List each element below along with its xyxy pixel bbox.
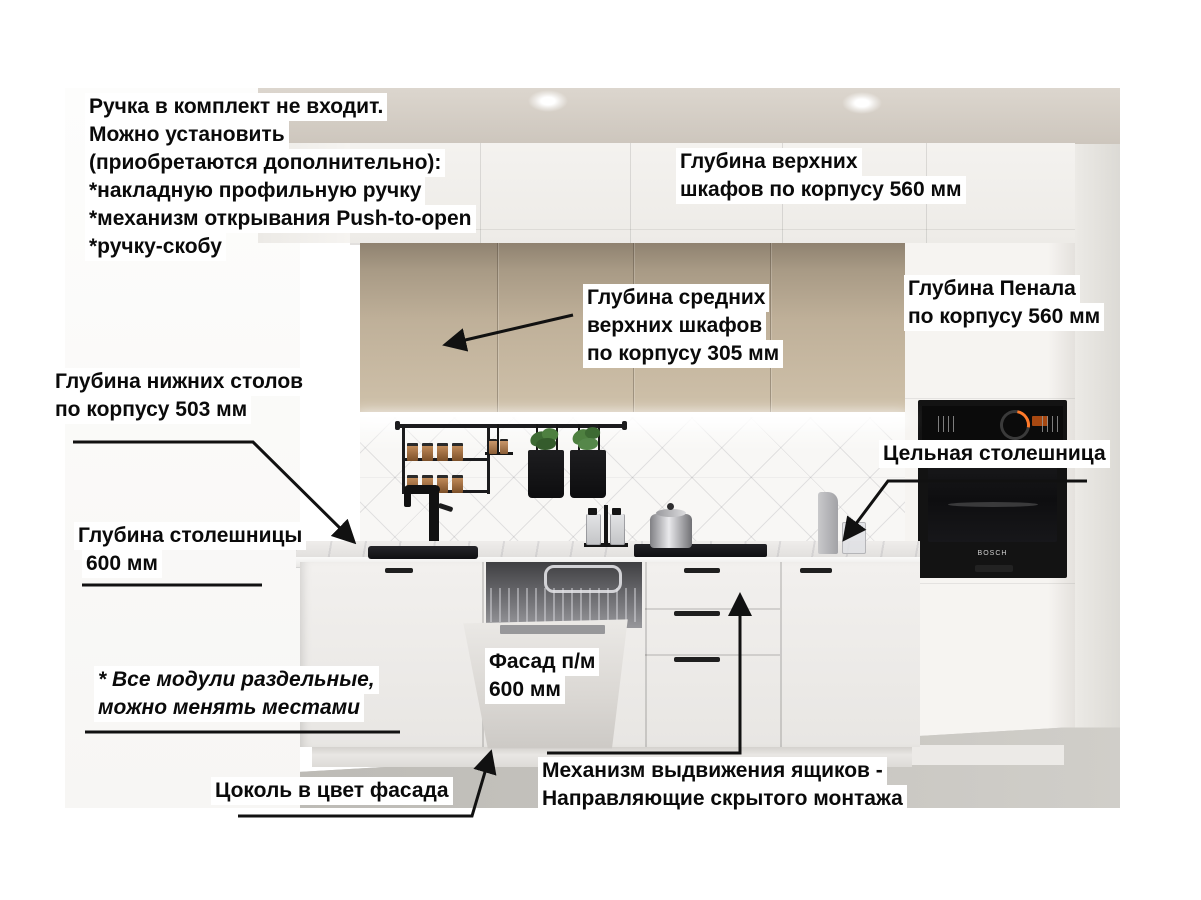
cabinet-seam	[480, 143, 481, 243]
drinking-glass	[842, 522, 866, 554]
annotation-line: шкафов по корпусу 560 мм	[676, 176, 966, 204]
annotation-line: Направляющие скрытого монтажа	[538, 785, 907, 813]
annotation-line: *накладную профильную ручку	[85, 177, 425, 205]
annotation-line: Глубина средних	[583, 284, 769, 312]
cabinet-seam	[905, 583, 1075, 584]
annotation-line: верхних шкафов	[583, 312, 766, 340]
dishwasher-door-handle	[500, 625, 605, 634]
annotation-line: *ручку-скобу	[85, 233, 226, 261]
cabinet-handle	[800, 568, 832, 573]
drawer-handle	[674, 657, 720, 662]
ceiling-spotlight	[842, 92, 882, 114]
oil-bottle-cap	[588, 508, 597, 515]
drawer-seam	[645, 654, 780, 656]
dishwasher-interior	[486, 562, 642, 628]
annotation-plinth: Цоколь в цвет фасада	[211, 777, 453, 805]
annotation-line: Ручка в комплект не входит.	[85, 93, 387, 121]
annotation-line: 600 мм	[82, 550, 162, 578]
annotation-modules-note: * Все модули раздельные, можно менять ме…	[94, 666, 379, 722]
annotation-solid-countertop: Цельная столешница	[879, 440, 1110, 468]
drawer-handle	[674, 611, 720, 616]
annotation-line: Механизм выдвижения ящиков -	[538, 757, 887, 785]
annotation-line: по корпусу 560 мм	[904, 303, 1104, 331]
annotation-line: *механизм открывания Push-to-open	[85, 205, 476, 233]
annotation-dishwasher-facade: Фасад п/м 600 мм	[485, 648, 599, 704]
mini-bottle	[489, 439, 497, 454]
annotation-tall-cabinet-depth: Глубина Пенала по корпусу 560 мм	[904, 275, 1104, 331]
mini-bottle	[500, 439, 508, 454]
annotation-handles-note: Ручка в комплект не входит. Можно устано…	[85, 93, 476, 261]
cabinet-handle	[385, 568, 413, 573]
spice-jar	[452, 443, 463, 461]
plinth-penal	[912, 745, 1064, 765]
annotation-line: Можно установить	[85, 121, 289, 149]
rail-hanger	[497, 424, 499, 454]
dishwasher-rack	[490, 588, 638, 622]
annotated-kitchen-image: BOSCH	[0, 0, 1201, 900]
annotation-line: Глубина верхних	[676, 148, 862, 176]
cabinet-seam	[905, 398, 1075, 399]
annotation-line: Глубина нижних столов	[51, 368, 307, 396]
spice-jar	[407, 443, 418, 461]
annotation-line: Глубина столешницы	[74, 522, 306, 550]
annotation-base-cabinets-depth: Глубина нижних столов по корпусу 503 мм	[51, 368, 307, 424]
annotation-drawer-mechanism: Механизм выдвижения ящиков - Направляющи…	[538, 757, 907, 813]
oven-brand-logo: BOSCH	[918, 550, 1067, 557]
oil-stand	[604, 505, 608, 545]
faucet-spout	[404, 487, 411, 507]
annotation-line: Глубина Пенала	[904, 275, 1080, 303]
hanging-planter	[570, 450, 606, 498]
module-seam	[780, 562, 782, 747]
annotation-line: Цельная столешница	[879, 440, 1110, 468]
cutting-board	[818, 492, 838, 554]
oil-bottle	[586, 514, 601, 545]
drawer-seam	[645, 608, 780, 610]
under-cabinet-light	[360, 412, 905, 417]
kettle-knob	[667, 503, 674, 510]
oven-handle	[975, 565, 1013, 572]
annotation-line: Цоколь в цвет фасада	[211, 777, 453, 805]
right-wall	[1075, 144, 1120, 734]
rail-end-cap	[622, 421, 627, 430]
annotation-line: * Все модули раздельные,	[94, 666, 379, 694]
annotation-line: можно менять местами	[94, 694, 364, 722]
kettle	[650, 514, 692, 548]
annotation-line: (приобретаются дополнительно):	[85, 149, 445, 177]
drawer-handle	[684, 568, 720, 573]
hanging-planter	[528, 450, 564, 498]
cabinet-seam	[630, 143, 631, 243]
spice-jars-row	[407, 443, 463, 461]
oven-panel-ticks	[1042, 416, 1062, 432]
spice-jar	[452, 475, 463, 493]
annotation-line: Фасад п/м	[485, 648, 599, 676]
oil-bottle-cap	[612, 508, 621, 515]
annotation-line: 600 мм	[485, 676, 565, 704]
oil-bottle	[610, 514, 625, 545]
ceiling-spotlight	[528, 90, 568, 112]
rail-end-cap	[395, 421, 400, 430]
spice-jar	[422, 443, 433, 461]
kettle-lid	[656, 509, 686, 517]
oven-panel-ticks	[938, 416, 958, 432]
annotation-upper-cabinets-depth: Глубина верхних шкафов по корпусу 560 мм	[676, 148, 966, 204]
annotation-line: по корпусу 503 мм	[51, 396, 251, 424]
annotation-line: по корпусу 305 мм	[583, 340, 783, 368]
spice-jar	[437, 443, 448, 461]
oven-glass-reflection	[948, 502, 1038, 507]
cabinet-seam	[497, 243, 498, 412]
annotation-countertop-depth: Глубина столешницы 600 мм	[74, 522, 306, 578]
black-sink	[368, 546, 478, 559]
annotation-middle-upper-cabinets-depth: Глубина средних верхних шкафов по корпус…	[583, 284, 783, 368]
